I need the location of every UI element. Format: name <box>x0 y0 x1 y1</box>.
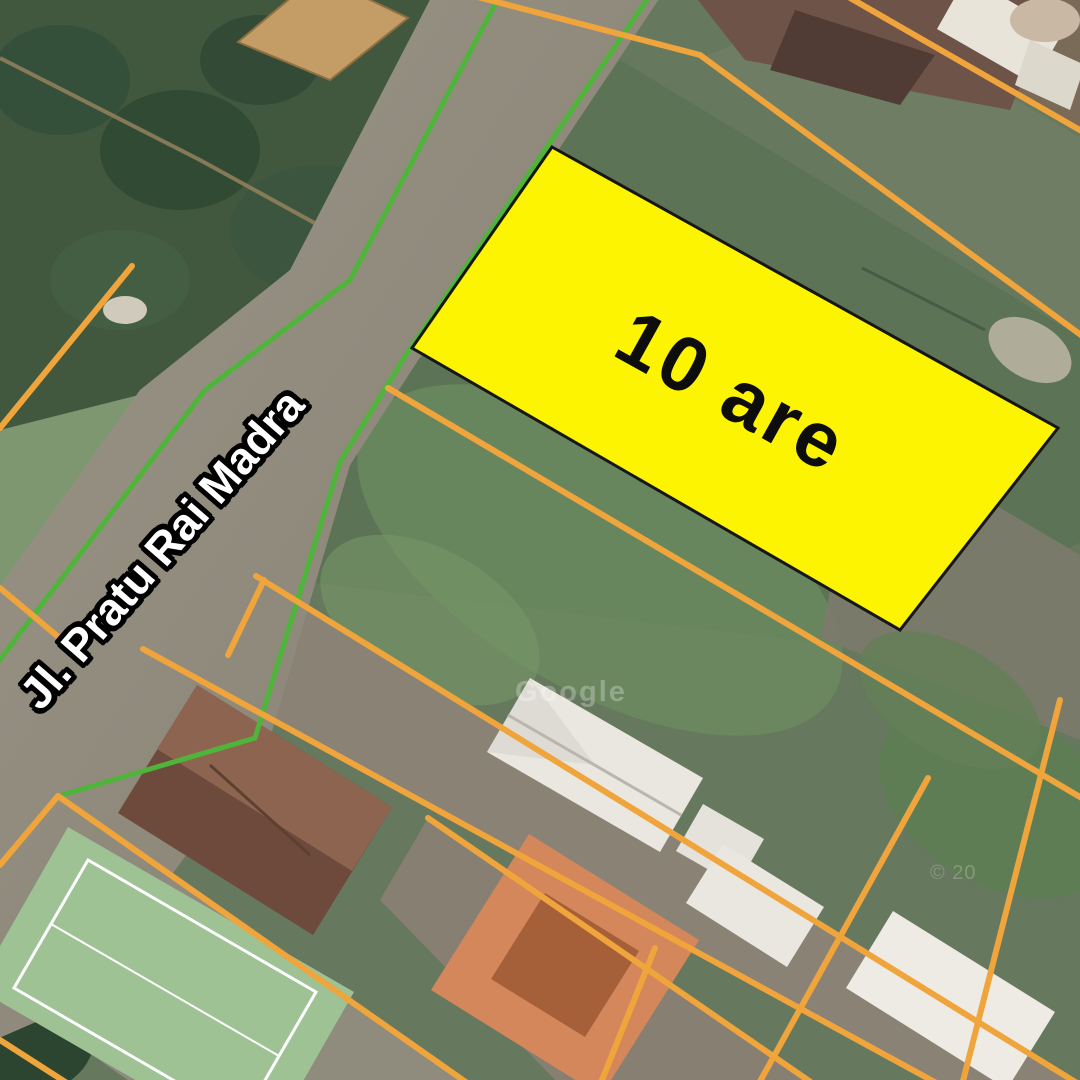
copyright-fragment: © 20 <box>930 862 1050 885</box>
satellite-map: Google © 20 Jl. Pratu Rai Madra 10 are <box>0 0 1080 1080</box>
building-tan-ne <box>1010 0 1080 42</box>
small-structure <box>103 296 147 324</box>
google-watermark: Google <box>515 676 715 709</box>
